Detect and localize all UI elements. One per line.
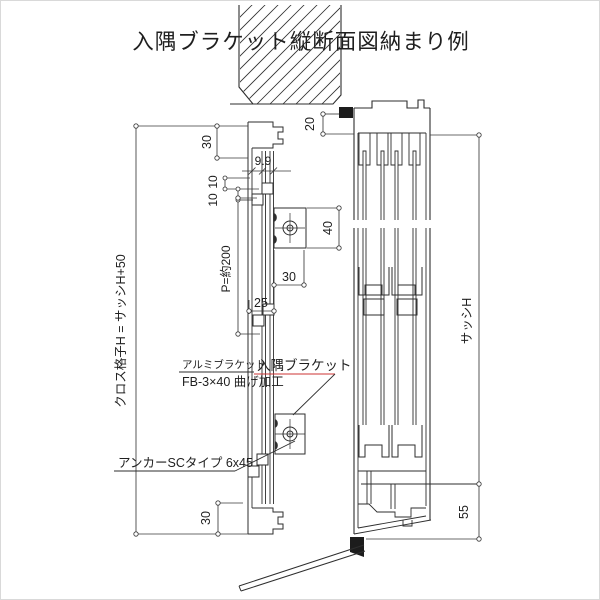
bolt-square [253,315,264,326]
dim-bracket-height: 40 [321,221,335,235]
dim-bottom-offset: 30 [199,511,213,525]
lattice-assembly [248,122,306,534]
dim-top-clearance: 20 [303,117,317,131]
alumi-bracket-label: アルミブラケット [182,358,266,371]
bolt-square [252,194,263,205]
anchor-label: アンカーSCタイプ 6x45 [118,456,253,470]
corner-bracket-leader [293,374,335,415]
dim-bracket-width: 30 [282,270,296,284]
dim-offset-lower: 10 [206,193,220,207]
sash-height-label: サッシH [460,298,474,345]
corner-bracket-upper [274,208,306,248]
corner-bracket-label: 入隅ブラケット [257,357,352,373]
head-seal [339,107,353,118]
lattice-top-cap [248,122,283,148]
dim-web-gaps: 9.9 [255,154,272,168]
sash-bottom-rails [359,425,422,457]
sash-head-profile [354,100,430,108]
dim-plate-width: 25 [254,296,268,310]
wall-section [123,1,443,121]
wall-hatch [123,1,443,121]
dimension-endpoints [134,112,481,541]
alumi-bracket-spec-label: FB-3×40 曲げ加工 [182,375,284,389]
lattice-height-label: クロス格子H = サッシH+50 [113,254,128,408]
bracket-plate-lines [262,151,274,504]
lattice-bottom-cap [248,508,283,534]
dim-top-offset: 30 [200,135,214,149]
dimension-lines [134,112,481,541]
bolt-square [262,183,273,194]
pitch-label: P=約200 [218,245,233,292]
dim-sill-height: 55 [457,505,471,519]
section-drawing: 入隅ブラケット縦断面図納まり例 クロス格子H = サッシH+50 サッシH P=… [1,1,599,599]
drawing-title: 入隅ブラケット縦断面図納まり例 [132,30,470,54]
dim-offset-upper: 10 [206,175,220,189]
sash-head-channels [359,133,420,165]
drawing-sheet: 入隅ブラケット縦断面図納まり例 クロス格子H = サッシH+50 サッシH P=… [0,0,600,600]
corner-bracket-lower [275,414,305,454]
sash-frame [239,100,479,591]
sash-sill [354,471,479,534]
flashing-line [239,545,365,591]
